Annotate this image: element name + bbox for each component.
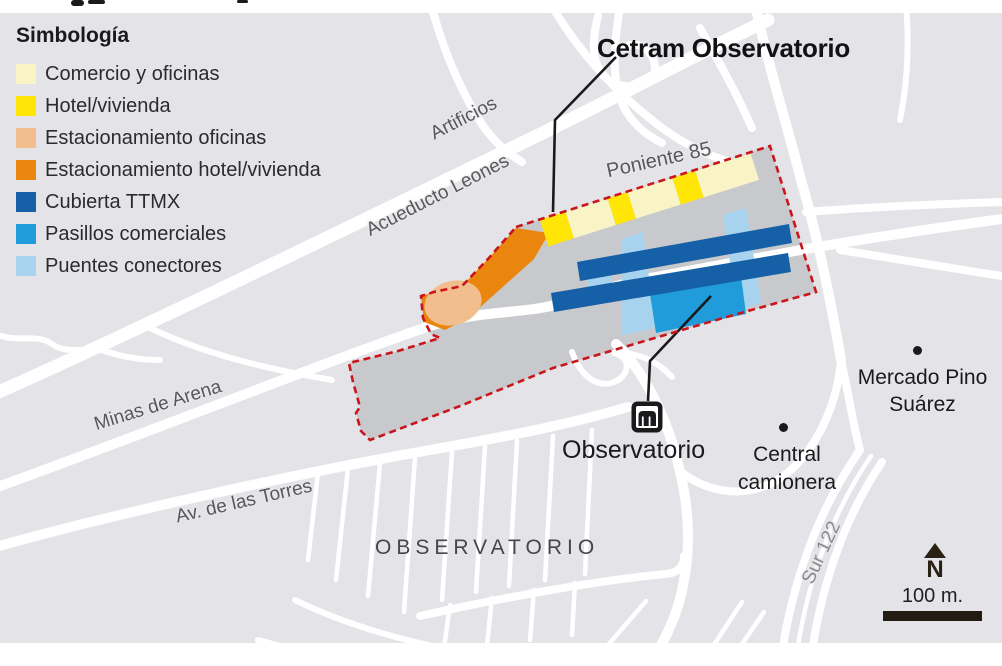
road-sw-diag-2 <box>258 640 425 666</box>
legend-swatch-parking-hotel <box>16 160 36 180</box>
poi-label-mercado: Mercado Pino Suárez <box>855 364 990 419</box>
legend: Simbología Comercio y oficinas Hotel/viv… <box>16 24 321 282</box>
legend-swatch-hotel <box>16 96 36 116</box>
compass-letter: N <box>922 556 948 584</box>
legend-swatch-halls <box>16 224 36 244</box>
legend-item: Hotel/vivienda <box>16 90 321 122</box>
legend-item: Pasillos comerciales <box>16 218 321 250</box>
legend-item: Comercio y oficinas <box>16 58 321 90</box>
poi-dot-central <box>779 423 788 432</box>
scale-bar <box>883 611 982 621</box>
legend-swatch-parking-offices <box>16 128 36 148</box>
poi-dot-mercado <box>913 346 922 355</box>
legend-swatch-ttmx <box>16 192 36 212</box>
scale-label: 100 m. <box>883 585 982 608</box>
legend-swatch-bridges <box>16 256 36 276</box>
legend-swatch-commerce <box>16 64 36 84</box>
legend-item: Cubierta TTMX <box>16 186 321 218</box>
poi-label-central: Central camionera <box>728 441 846 498</box>
metro-icon <box>631 401 663 438</box>
cropped-title-fragment <box>71 0 248 6</box>
infographic: Simbología Comercio y oficinas Hotel/viv… <box>0 0 1002 666</box>
area-label-observatorio: OBSERVATORIO <box>375 536 599 560</box>
callout-title: Cetram Observatorio <box>597 33 850 64</box>
legend-item: Estacionamiento hotel/vivienda <box>16 154 321 186</box>
legend-item: Puentes conectores <box>16 250 321 282</box>
legend-item: Estacionamiento oficinas <box>16 122 321 154</box>
legend-title: Simbología <box>16 24 321 48</box>
poi-label-observatorio: Observatorio <box>562 436 705 465</box>
